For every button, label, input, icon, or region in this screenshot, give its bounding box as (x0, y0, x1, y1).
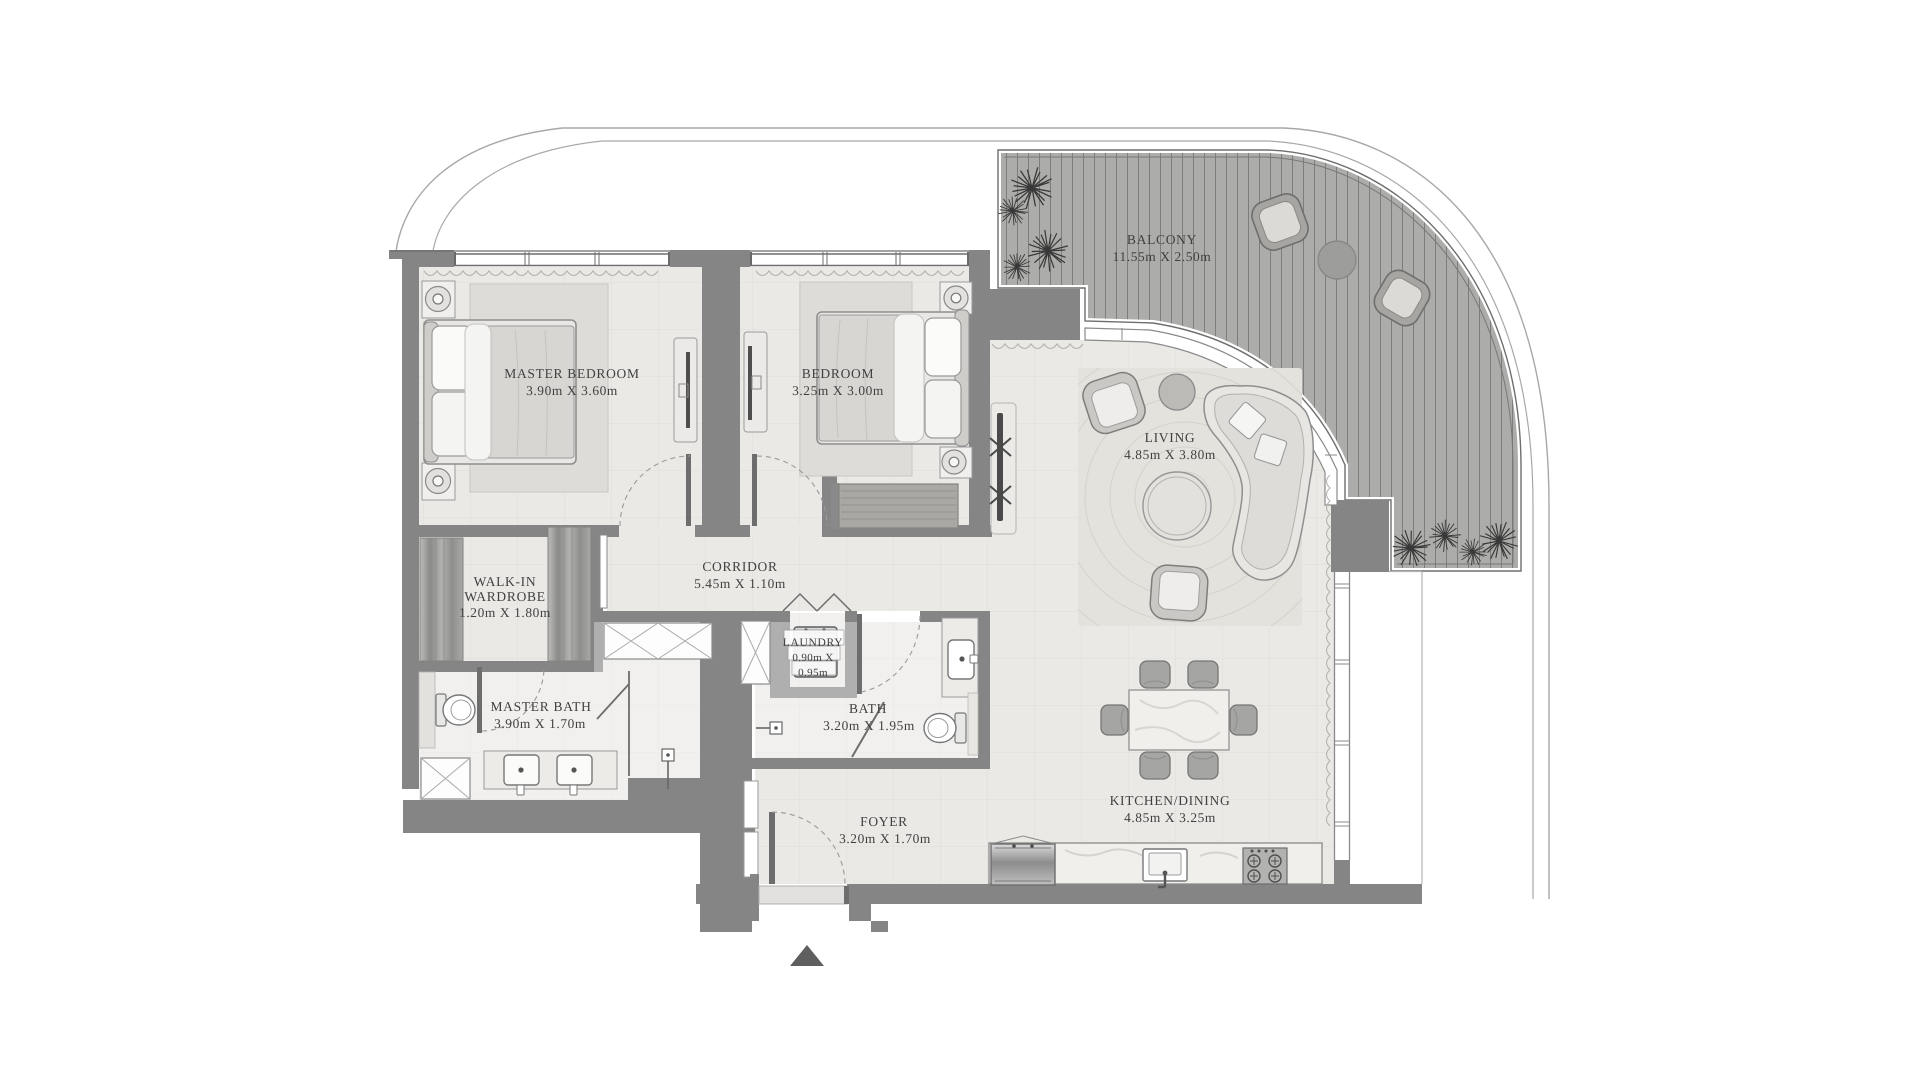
svg-text:3.20m X 1.70m: 3.20m X 1.70m (839, 831, 931, 846)
svg-text:KITCHEN/DINING: KITCHEN/DINING (1110, 793, 1231, 808)
svg-text:BALCONY: BALCONY (1127, 232, 1197, 247)
svg-text:WARDROBE: WARDROBE (464, 589, 545, 604)
svg-text:LAUNDRY: LAUNDRY (783, 637, 844, 649)
svg-text:3.90m X 3.60m: 3.90m X 3.60m (526, 383, 618, 398)
svg-text:0.90m X: 0.90m X (792, 652, 833, 664)
svg-text:11.55m X 2.50m: 11.55m X 2.50m (1113, 249, 1212, 264)
svg-text:BATH: BATH (849, 701, 887, 716)
svg-text:LIVING: LIVING (1145, 430, 1196, 445)
svg-text:MASTER BEDROOM: MASTER BEDROOM (504, 366, 639, 381)
svg-text:FOYER: FOYER (860, 814, 908, 829)
svg-text:3.20m X 1.95m: 3.20m X 1.95m (823, 718, 915, 733)
svg-text:4.85m X 3.25m: 4.85m X 3.25m (1124, 810, 1216, 825)
svg-text:3.25m X 3.00m: 3.25m X 3.00m (792, 383, 884, 398)
svg-text:4.85m X 3.80m: 4.85m X 3.80m (1124, 447, 1216, 462)
svg-text:0.95m: 0.95m (798, 667, 828, 679)
svg-text:5.45m X 1.10m: 5.45m X 1.10m (694, 576, 786, 591)
svg-text:MASTER BATH: MASTER BATH (490, 699, 591, 714)
svg-text:WALK-IN: WALK-IN (474, 574, 537, 589)
svg-text:BEDROOM: BEDROOM (802, 366, 874, 381)
svg-text:1.20m X 1.80m: 1.20m X 1.80m (459, 605, 551, 620)
svg-text:3.90m X 1.70m: 3.90m X 1.70m (494, 716, 586, 731)
svg-text:CORRIDOR: CORRIDOR (702, 559, 777, 574)
